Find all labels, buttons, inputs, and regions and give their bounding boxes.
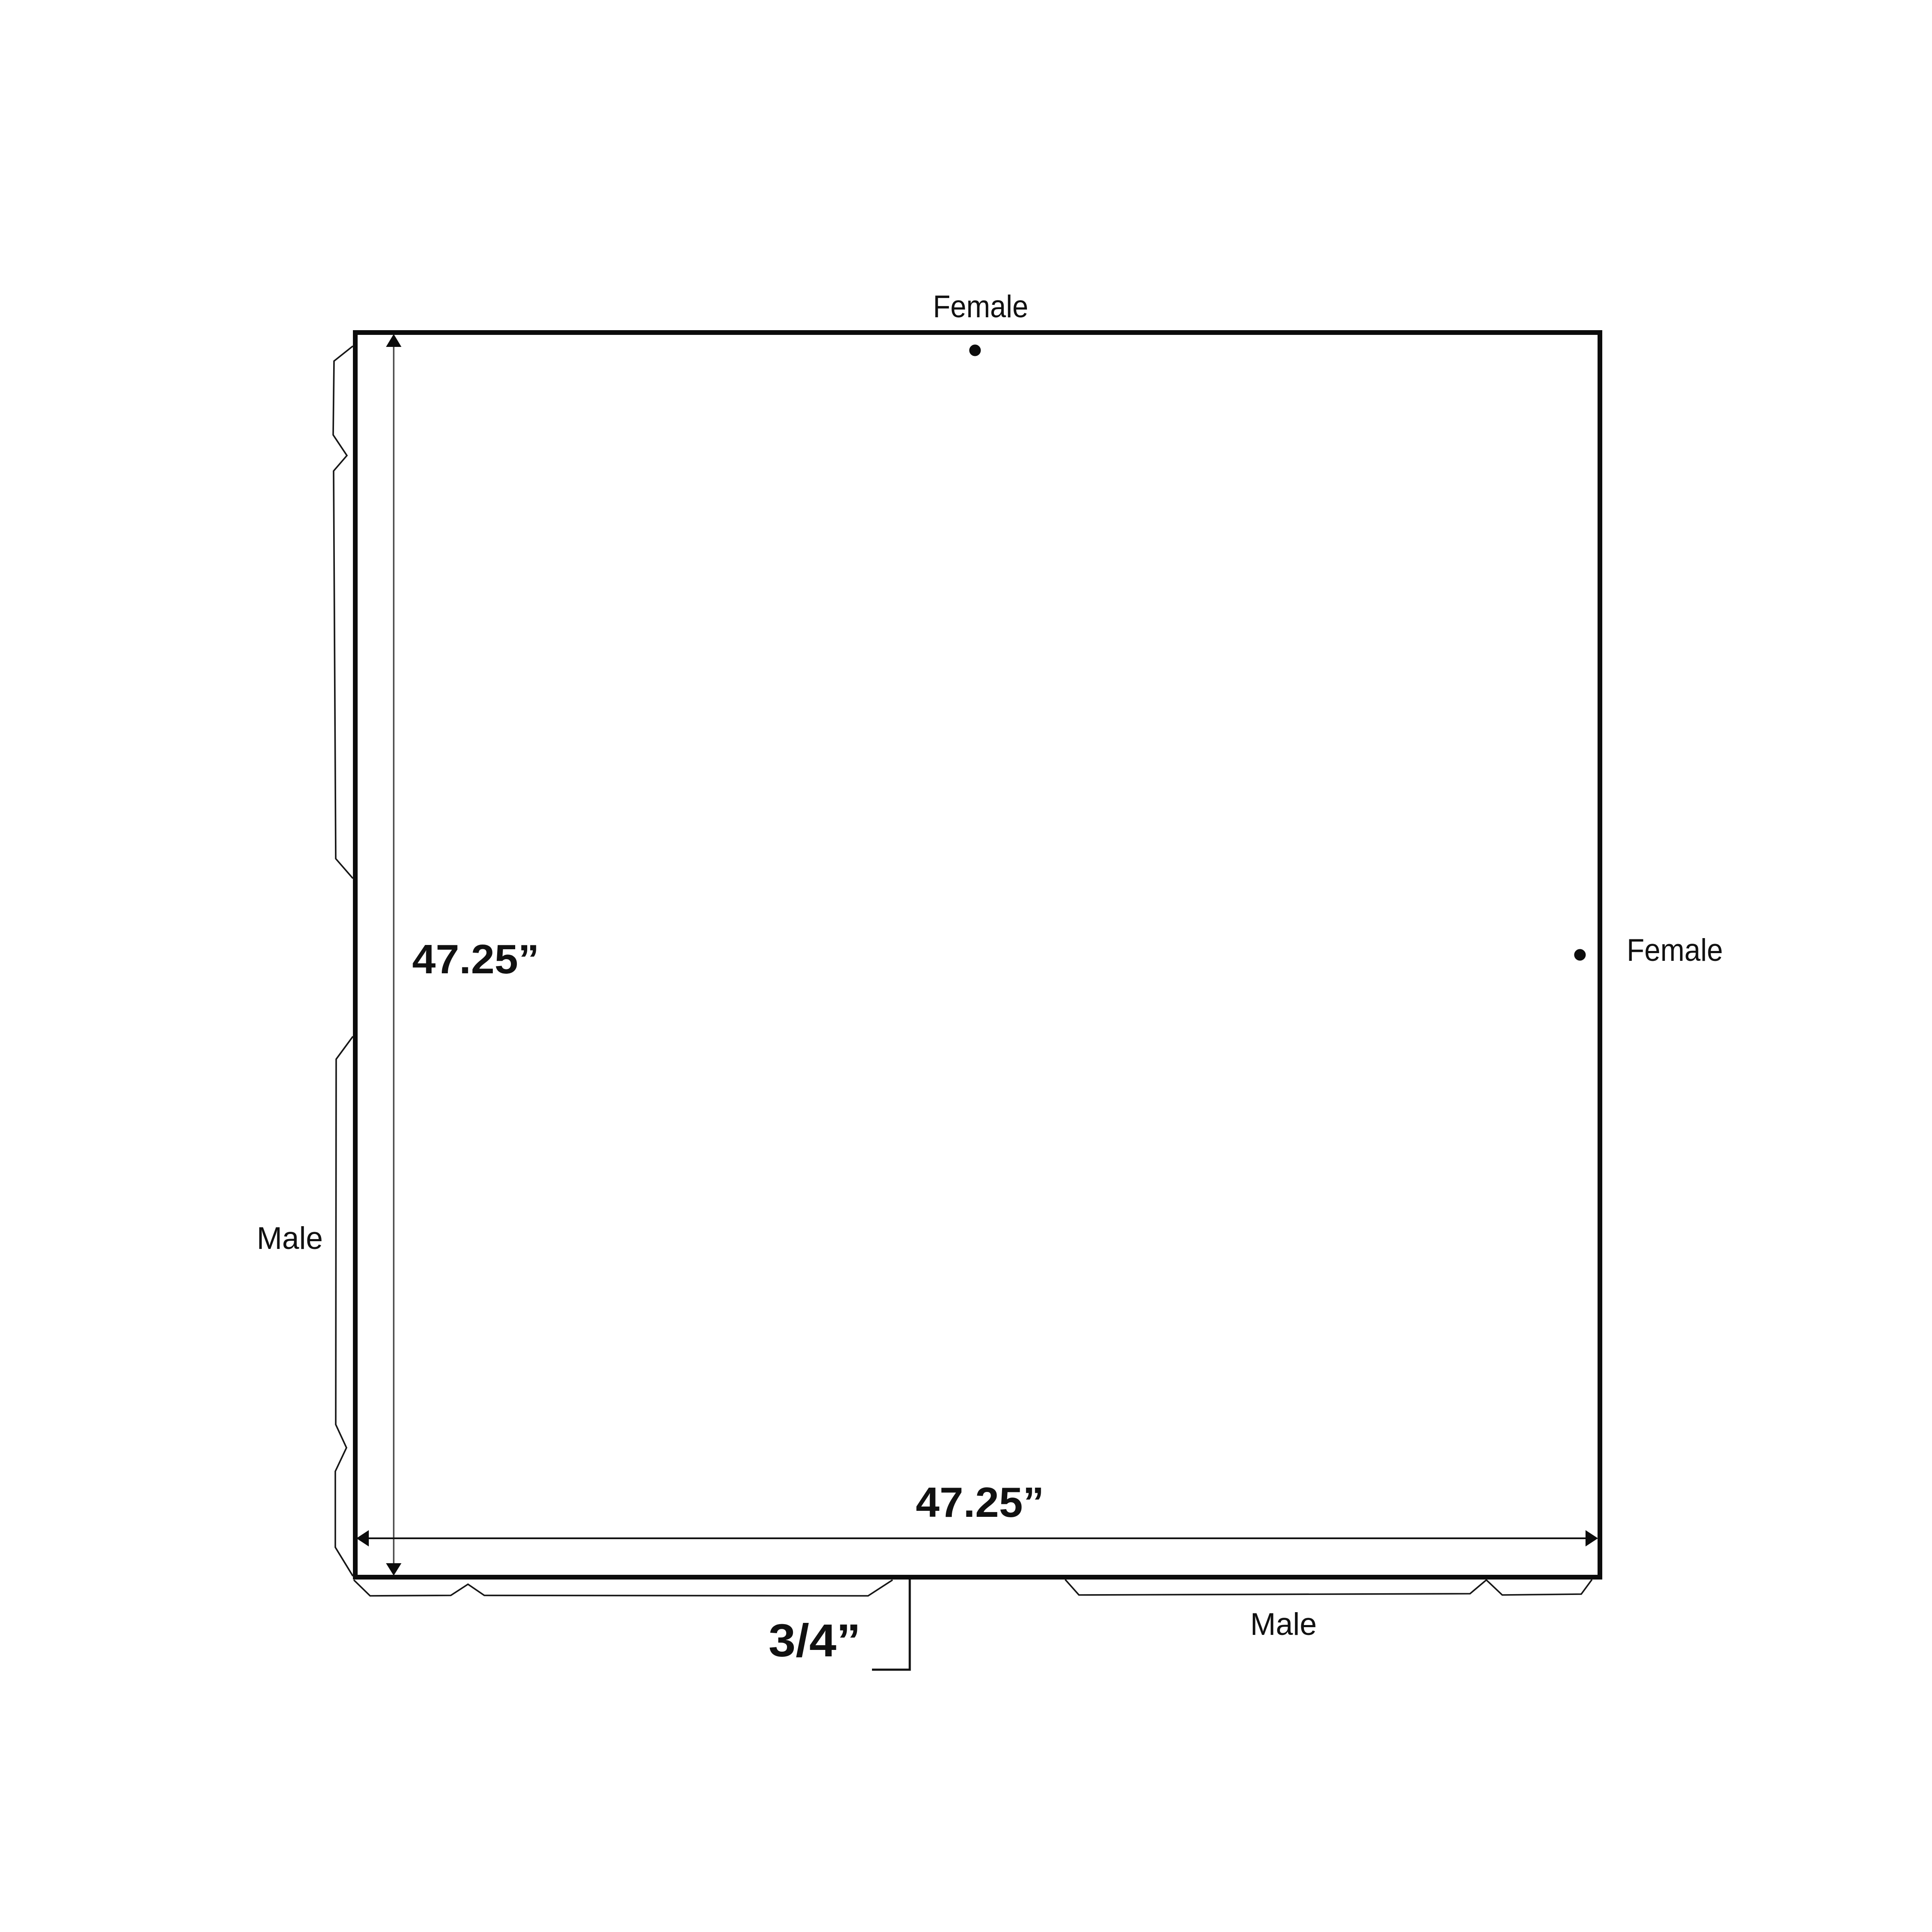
svg-text:3/4”: 3/4” [769, 1614, 861, 1666]
svg-text:Female: Female [1627, 933, 1723, 968]
svg-text:Female: Female [933, 289, 1028, 324]
svg-text:47.25”: 47.25” [412, 936, 539, 982]
svg-text:47.25”: 47.25” [916, 1479, 1044, 1526]
svg-text:Male: Male [1250, 1607, 1317, 1642]
svg-text:Male: Male [257, 1221, 323, 1256]
